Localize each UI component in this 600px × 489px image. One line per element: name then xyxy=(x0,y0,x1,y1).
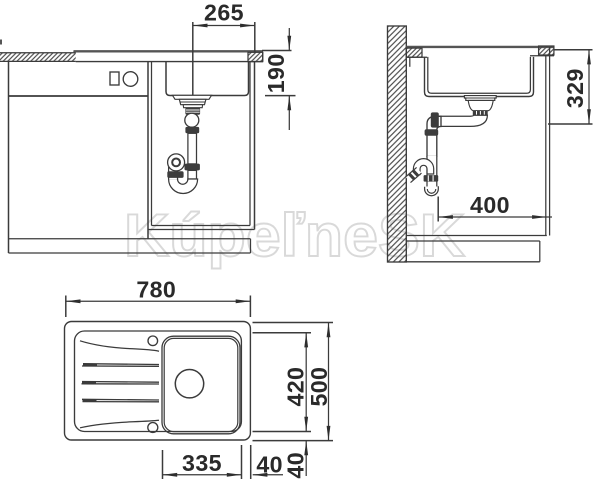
svg-text:780: 780 xyxy=(136,277,176,303)
svg-text:335: 335 xyxy=(182,450,222,476)
svg-text:500: 500 xyxy=(306,367,332,407)
svg-text:40: 40 xyxy=(256,452,283,478)
svg-text:265: 265 xyxy=(204,0,244,26)
svg-text:190: 190 xyxy=(263,53,289,93)
svg-text:329: 329 xyxy=(562,68,588,108)
svg-text:400: 400 xyxy=(470,192,510,218)
svg-text:420: 420 xyxy=(283,367,309,407)
svg-text:40: 40 xyxy=(283,452,309,479)
